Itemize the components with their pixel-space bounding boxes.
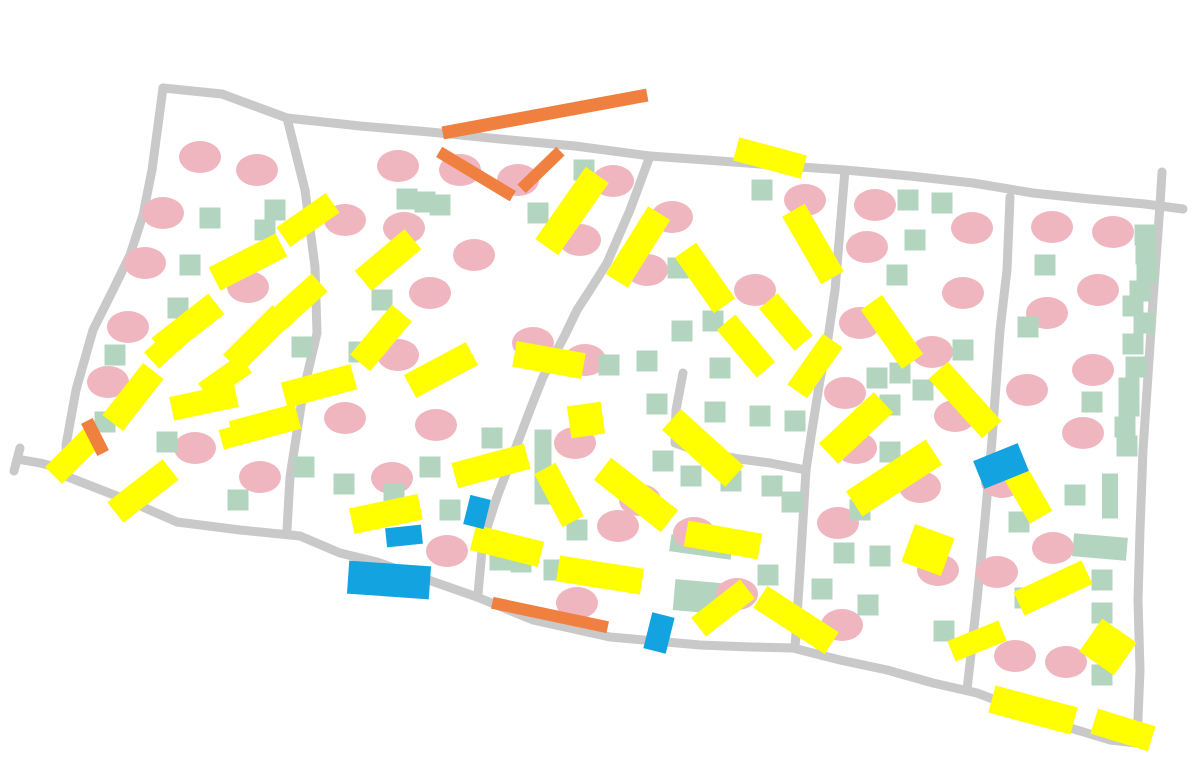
green-square xyxy=(372,290,393,311)
green-square xyxy=(898,190,919,211)
green-square xyxy=(867,368,888,389)
pink-dot xyxy=(239,461,281,493)
pink-dot xyxy=(951,212,993,244)
yellow-bar xyxy=(662,409,744,487)
green-square xyxy=(599,355,620,376)
blue-shape xyxy=(643,612,674,653)
green-square xyxy=(105,345,126,366)
pink-dot xyxy=(1092,216,1134,248)
green-square xyxy=(932,193,953,214)
green-square xyxy=(1137,263,1158,284)
pink-dot xyxy=(426,535,468,567)
green-square xyxy=(1035,255,1056,276)
green-square xyxy=(913,380,934,401)
green-square xyxy=(758,565,779,586)
green-square xyxy=(705,402,726,423)
pink-dot xyxy=(236,154,278,186)
green-rect xyxy=(1072,533,1128,561)
pink-dot xyxy=(942,277,984,309)
green-square xyxy=(200,208,221,229)
green-square xyxy=(785,411,806,432)
yellow-bar xyxy=(451,444,530,489)
green-square xyxy=(1115,417,1136,438)
blue-shape xyxy=(385,525,423,548)
green-square xyxy=(440,500,461,521)
green-square xyxy=(934,621,955,642)
green-square xyxy=(157,432,178,453)
green-square xyxy=(397,189,418,210)
road xyxy=(163,88,1183,209)
green-square xyxy=(762,476,783,497)
yellow-bar xyxy=(229,404,301,447)
pink-dot xyxy=(377,150,419,182)
pink-dot xyxy=(142,197,184,229)
pink-dot xyxy=(1006,374,1048,406)
pink-dot xyxy=(1032,532,1074,564)
orange-bar xyxy=(442,89,649,140)
pink-dot xyxy=(415,409,457,441)
green-square xyxy=(834,543,855,564)
green-square xyxy=(953,340,974,361)
green-square xyxy=(1136,244,1157,265)
pink-dot xyxy=(107,311,149,343)
green-square xyxy=(1126,357,1147,378)
pink-dot xyxy=(1062,417,1104,449)
pink-dot xyxy=(124,247,166,279)
green-square xyxy=(228,490,249,511)
green-square xyxy=(710,358,731,379)
yellow-bar xyxy=(281,364,357,408)
hand-drawn-map xyxy=(0,0,1194,758)
blue-shape xyxy=(347,561,431,600)
green-square xyxy=(292,337,313,358)
green-square xyxy=(887,265,908,286)
green-square xyxy=(430,195,451,216)
green-square xyxy=(180,255,201,276)
road xyxy=(14,448,20,471)
green-square xyxy=(294,457,315,478)
green-square xyxy=(681,466,702,487)
green-square xyxy=(265,200,286,221)
pink-dot xyxy=(409,277,451,309)
green-square xyxy=(637,351,658,372)
yellow-bar xyxy=(1079,619,1136,676)
green-square xyxy=(1065,485,1086,506)
pink-dot xyxy=(846,231,888,263)
yellow-bar xyxy=(355,229,422,291)
pink-dot xyxy=(179,141,221,173)
green-square xyxy=(1134,313,1155,334)
green-square xyxy=(1119,396,1140,417)
green-square xyxy=(1119,378,1140,399)
pink-dot xyxy=(453,239,495,271)
pink-dot xyxy=(1077,274,1119,306)
pink-dot xyxy=(854,189,896,221)
green-square xyxy=(1135,225,1156,246)
pink-dot xyxy=(174,432,216,464)
green-square xyxy=(528,203,549,224)
green-square xyxy=(420,457,441,478)
pink-dot xyxy=(994,640,1036,672)
green-square xyxy=(647,394,668,415)
green-square xyxy=(750,406,771,427)
pink-dot xyxy=(324,402,366,434)
green-square xyxy=(672,321,693,342)
green-square xyxy=(1018,317,1039,338)
green-square xyxy=(1123,334,1144,355)
green-square xyxy=(334,474,355,495)
green-square xyxy=(752,180,773,201)
pink-dot xyxy=(976,556,1018,588)
yellow-bar xyxy=(733,137,807,178)
yellow-bar xyxy=(1014,560,1093,615)
pink-dot xyxy=(597,510,639,542)
green-rect xyxy=(1102,474,1118,519)
green-square xyxy=(653,451,674,472)
green-square xyxy=(1117,436,1138,457)
green-square xyxy=(1092,570,1113,591)
yellow-bar xyxy=(988,685,1077,734)
road xyxy=(967,197,1010,690)
pink-dot xyxy=(824,377,866,409)
yellow-bar xyxy=(567,402,605,438)
green-square xyxy=(1082,392,1103,413)
green-square xyxy=(782,492,803,513)
green-square xyxy=(905,230,926,251)
green-square xyxy=(482,428,503,449)
map-canvas xyxy=(0,0,1194,758)
pink-dot xyxy=(1072,354,1114,386)
pink-dot xyxy=(1031,211,1073,243)
green-square xyxy=(870,546,891,567)
green-square xyxy=(812,579,833,600)
green-square xyxy=(858,595,879,616)
